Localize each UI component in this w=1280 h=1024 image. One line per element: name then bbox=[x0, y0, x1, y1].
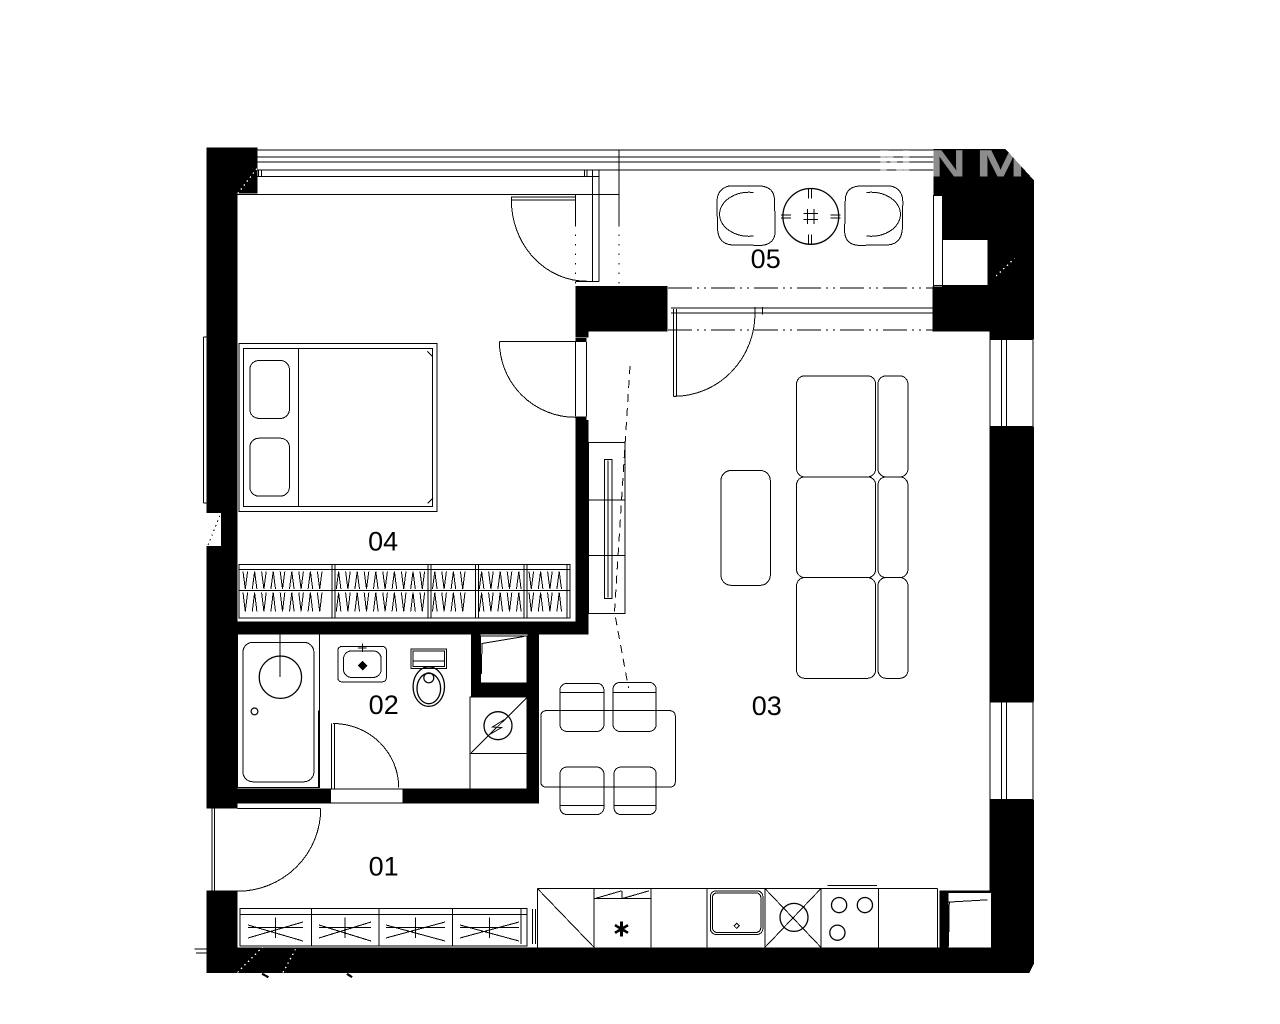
svg-text:02: 02 bbox=[369, 690, 399, 720]
svg-text:05: 05 bbox=[751, 244, 781, 274]
svg-text:03: 03 bbox=[752, 691, 782, 721]
svg-text:N: N bbox=[877, 143, 913, 185]
svg-text:M: M bbox=[976, 142, 1025, 185]
svg-text:04: 04 bbox=[368, 527, 398, 557]
svg-text:N: N bbox=[930, 143, 966, 185]
svg-text:01: 01 bbox=[369, 852, 399, 882]
